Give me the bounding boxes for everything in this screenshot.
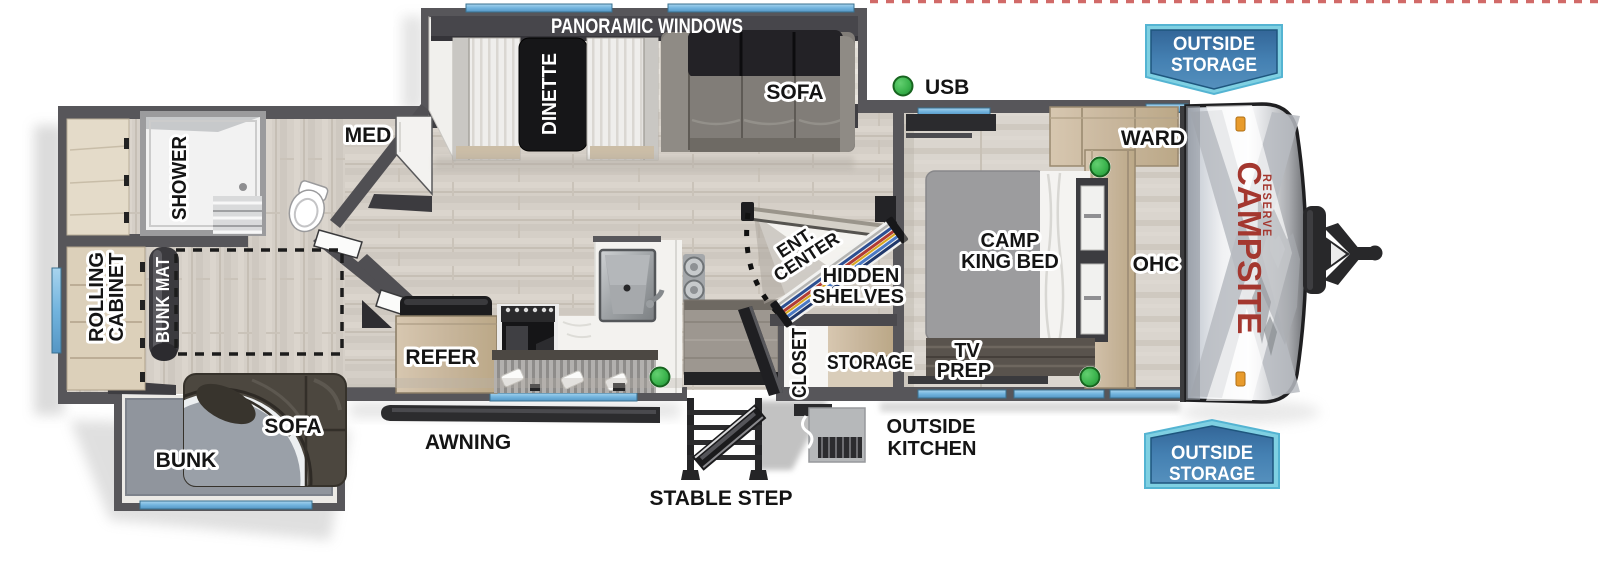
- svg-text:STORAGE: STORAGE: [1171, 55, 1257, 76]
- svg-text:STABLE STEP: STABLE STEP: [649, 487, 792, 510]
- svg-text:CAMP: CAMP: [981, 230, 1040, 252]
- svg-text:USB: USB: [925, 76, 969, 99]
- svg-text:HIDDEN: HIDDEN: [823, 265, 900, 287]
- svg-text:BUNK MAT: BUNK MAT: [153, 257, 173, 343]
- svg-text:ROLLING: ROLLING: [86, 252, 108, 342]
- svg-text:SOFA: SOFA: [264, 415, 321, 438]
- svg-text:STORAGE: STORAGE: [1169, 464, 1255, 485]
- svg-text:OUTSIDE: OUTSIDE: [1171, 443, 1253, 464]
- svg-text:MED: MED: [345, 124, 392, 147]
- svg-text:SHOWER: SHOWER: [169, 135, 191, 220]
- svg-text:PANORAMIC WINDOWS: PANORAMIC WINDOWS: [551, 15, 743, 38]
- svg-text:PREP: PREP: [937, 360, 991, 382]
- svg-text:STORAGE: STORAGE: [827, 352, 913, 374]
- svg-text:OUTSIDE: OUTSIDE: [887, 416, 976, 438]
- svg-text:DINETTE: DINETTE: [539, 53, 561, 135]
- svg-text:OHC: OHC: [1133, 253, 1180, 276]
- svg-text:CABINET: CABINET: [106, 253, 128, 342]
- svg-text:CLOSET: CLOSET: [789, 328, 811, 398]
- svg-text:RESERVE: RESERVE: [1260, 174, 1274, 238]
- svg-text:OUTSIDE: OUTSIDE: [1173, 34, 1255, 55]
- svg-text:AWNING: AWNING: [425, 431, 511, 454]
- svg-text:BUNK: BUNK: [156, 449, 217, 472]
- svg-text:REFER: REFER: [405, 346, 476, 369]
- svg-text:SOFA: SOFA: [766, 81, 823, 104]
- svg-text:WARD: WARD: [1121, 127, 1185, 150]
- svg-text:SHELVES: SHELVES: [812, 286, 904, 308]
- svg-text:KING BED: KING BED: [961, 251, 1059, 273]
- svg-text:KITCHEN: KITCHEN: [888, 438, 977, 460]
- svg-text:TV: TV: [954, 340, 980, 362]
